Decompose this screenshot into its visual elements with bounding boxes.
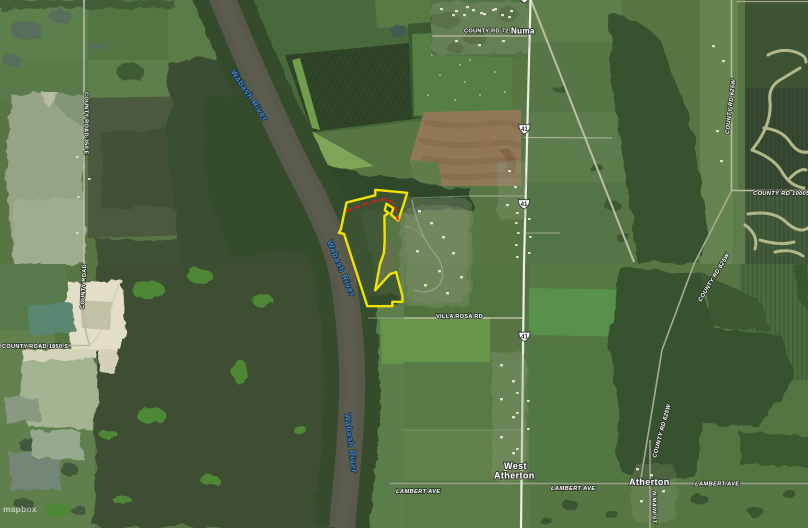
- svg-text:N MAIN ST: N MAIN ST: [651, 491, 657, 523]
- svg-text:COUNTY ROAD 1850 S: COUNTY ROAD 1850 S: [2, 344, 68, 350]
- svg-text:West: West: [504, 461, 527, 471]
- svg-text:41: 41: [521, 335, 528, 341]
- svg-text:41: 41: [521, 127, 528, 133]
- svg-text:41: 41: [521, 202, 528, 208]
- svg-text:mapbox: mapbox: [3, 504, 37, 514]
- svg-text:LAMBERT AVE: LAMBERT AVE: [396, 489, 441, 495]
- svg-text:Atherton: Atherton: [494, 471, 535, 481]
- svg-text:COUNTY RD 72: COUNTY RD 72: [464, 29, 509, 35]
- svg-text:Atherton: Atherton: [629, 477, 670, 487]
- svg-text:VILLA ROSA RD: VILLA ROSA RD: [436, 314, 483, 320]
- svg-text:COUNTY ROAD 350 E: COUNTY ROAD 350 E: [83, 92, 89, 155]
- svg-text:LAMBERT AVE: LAMBERT AVE: [551, 486, 596, 492]
- svg-text:LAMBERT AVE: LAMBERT AVE: [695, 482, 740, 488]
- svg-text:Numa: Numa: [511, 27, 535, 36]
- svg-text:COUNTY RD 1000S: COUNTY RD 1000S: [753, 191, 808, 197]
